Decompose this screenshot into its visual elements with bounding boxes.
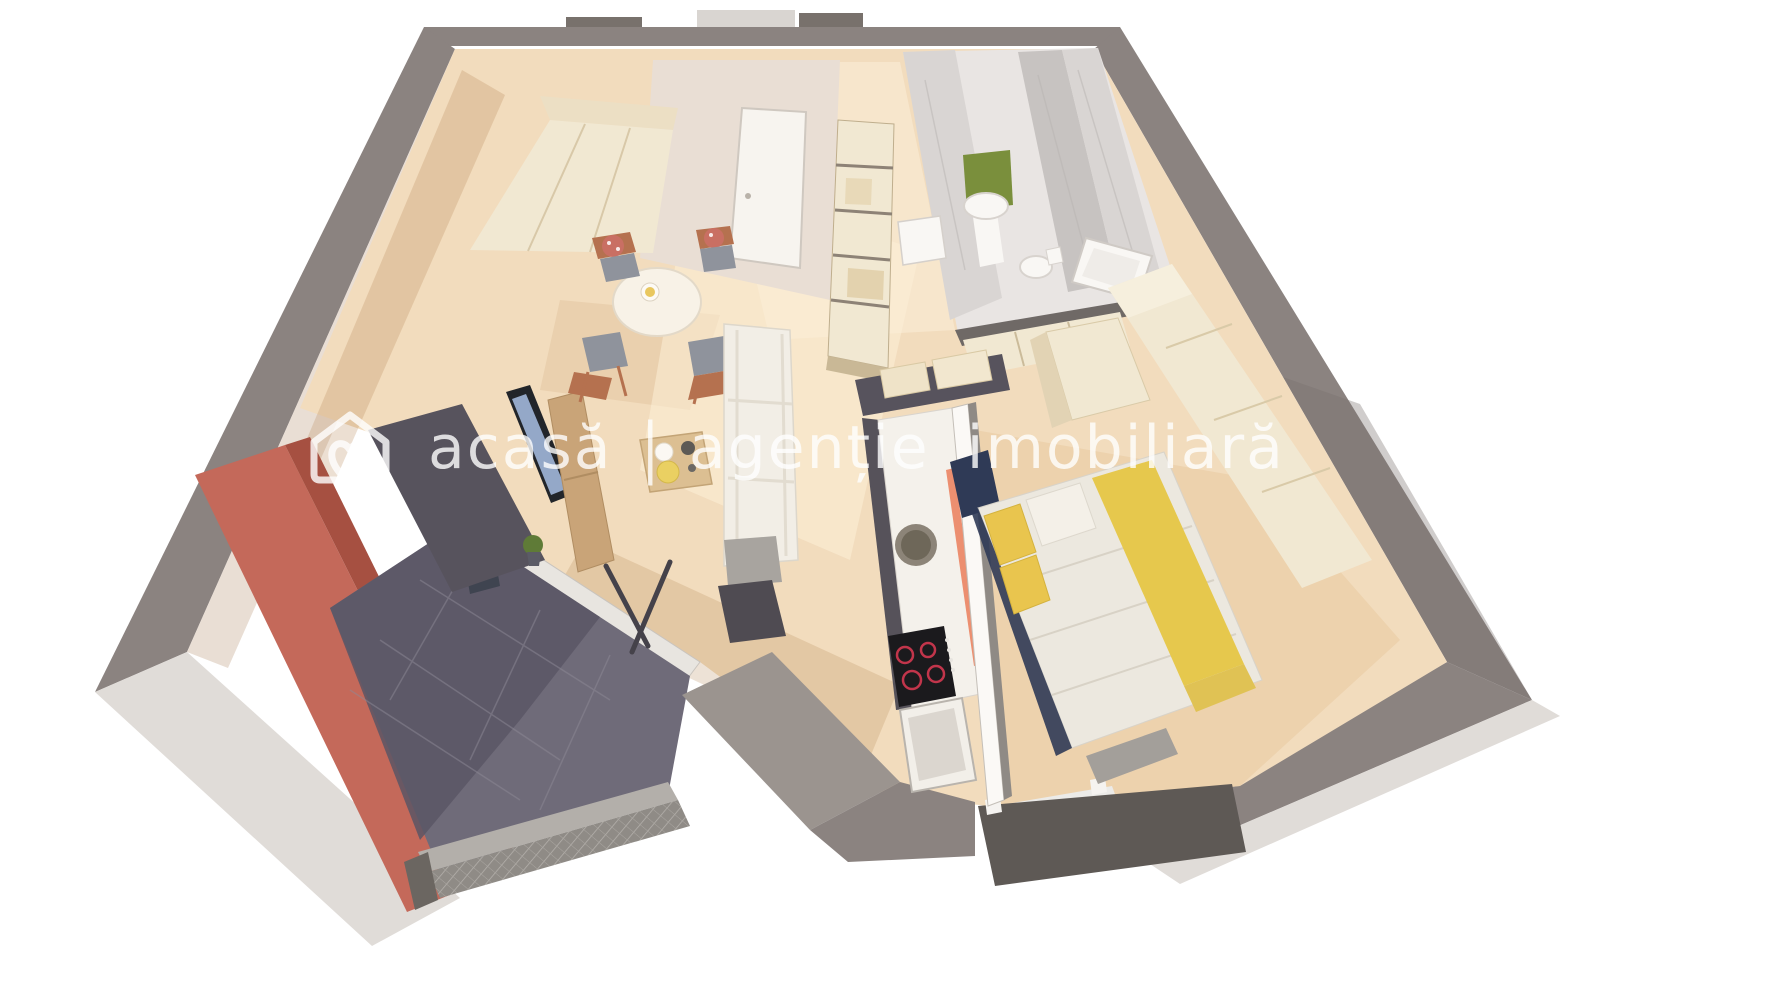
floorplan-svg	[0, 0, 1776, 1000]
cooktop	[888, 626, 956, 707]
cake	[645, 287, 655, 297]
shelving-unit	[828, 120, 894, 368]
kitchen-sink-basin	[901, 530, 931, 560]
chair-cushion-floral	[602, 235, 624, 257]
coffee-table	[640, 432, 712, 492]
entry-door	[730, 108, 806, 268]
floorplan-render: acasă | agenție imobiliară	[0, 0, 1776, 1000]
toilet	[1020, 256, 1052, 278]
top-wall-tab2	[799, 13, 863, 27]
cushion-dot	[616, 247, 620, 251]
chair-seat	[582, 332, 628, 372]
cushion-dot	[709, 233, 713, 237]
shelving-item-a	[845, 178, 872, 205]
coffee-plate-white	[655, 443, 673, 461]
top-wall-tab	[566, 17, 642, 27]
top-wall	[424, 27, 1120, 46]
plant-pot	[527, 552, 541, 566]
sofa-throw-gray	[724, 536, 782, 586]
cushion-dot	[607, 241, 611, 245]
chair-cushion-floral	[704, 228, 724, 248]
coffee-plate-dark	[681, 441, 695, 455]
top-wall-tab-light	[697, 10, 795, 27]
sink-basin	[964, 193, 1008, 219]
coffee-bowl-yellow	[657, 461, 679, 483]
coffee-cup	[688, 464, 696, 472]
toilet-tank	[1046, 247, 1063, 265]
door-handle	[745, 193, 751, 199]
chair-seat	[700, 245, 736, 272]
shelving-item-b	[847, 268, 884, 300]
washing-machine	[898, 216, 946, 265]
